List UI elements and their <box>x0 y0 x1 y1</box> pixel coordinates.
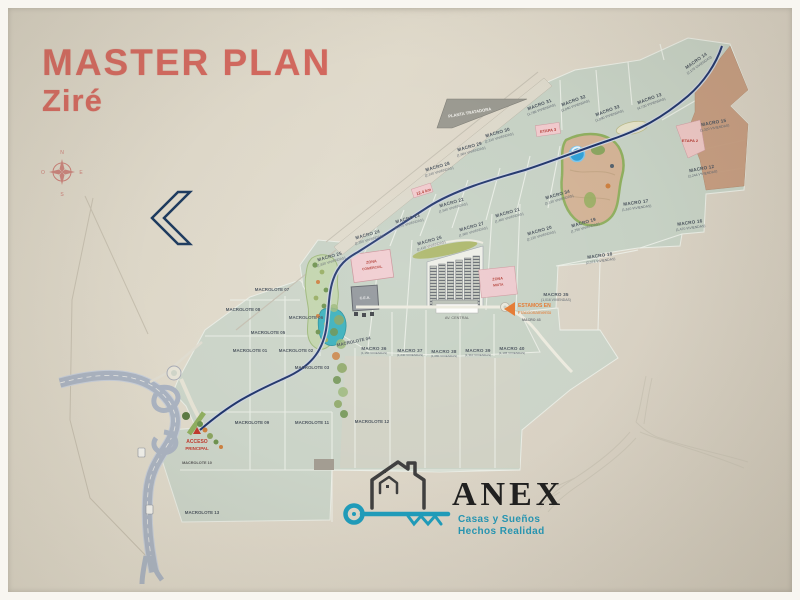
map-title-line1: MASTER PLAN <box>42 44 331 83</box>
photo-artifact <box>314 459 334 470</box>
compass-o: O <box>41 170 45 176</box>
compass-e: E <box>79 170 83 176</box>
macrolote-label: MACROLOTE 11 <box>295 420 330 425</box>
equipment-label: C.E.A. <box>360 296 371 301</box>
zona-mixta-parcel: ZONA MIXTA <box>479 266 518 298</box>
brand-tagline2: Hechos Realidad <box>458 526 545 537</box>
here-marker-sub: MACRO 43 <box>522 318 541 322</box>
compass-icon: N S E O <box>41 150 83 198</box>
macrolote-label: MACROLOTE 01 <box>233 348 268 353</box>
parcel-sub: (1,195 VIVIENDAS) <box>499 351 525 355</box>
parcel-label: MACRO 35 <box>543 292 569 297</box>
here-marker-line2: Fraccionamiento <box>518 310 552 315</box>
entrance-marker-line1: ACCESO <box>186 439 208 445</box>
highway <box>60 375 178 584</box>
here-marker-line1: ESTAMOS EN <box>518 303 551 309</box>
macrolote-label: MACROLOTE 09 <box>235 420 270 425</box>
brand-name: ANEX <box>452 476 564 513</box>
map-title: MASTER PLAN Ziré <box>42 44 331 117</box>
chevron-left-icon <box>152 192 190 244</box>
macrolote-label: MACROLOTE 03 <box>295 365 330 370</box>
avenue-label: AV. CENTRAL <box>445 316 469 320</box>
macrolote-label: MACROLOTE 05 <box>251 330 286 335</box>
etapa2-label: ETAPA 2 <box>682 138 699 143</box>
parcel-sub: (1,080 VIVIENDAS) <box>431 354 457 358</box>
future-roads-sketch <box>538 376 748 512</box>
macrolote-label: MACROLOTE 06 <box>289 315 324 320</box>
compass-n: N <box>60 150 64 156</box>
master-plan-photo: PLANTA TRATADORA <box>0 0 800 600</box>
map-title-line2: Ziré <box>42 85 331 118</box>
macrolote-label: MACROLOTE 12 <box>355 419 390 424</box>
parcel-sub: (1,240 VIVIENDAS) <box>397 353 423 357</box>
macrolote-label: MACROLOTE 08 <box>226 307 261 312</box>
entrance-marker-line2: PRINCIPAL <box>185 446 209 451</box>
macrolote-label: MACROLOTE 13 <box>185 510 220 515</box>
entrance-marker-sub: MACROLOTE 10 <box>182 461 212 465</box>
route-shield <box>146 505 153 514</box>
route-shield <box>138 448 145 457</box>
macrolote-label: MACROLOTE 02 <box>279 348 314 353</box>
compass-s: S <box>60 192 64 198</box>
parcel-sub: (1,150 VIVIENDAS) <box>361 351 387 355</box>
parcel-sub: (1,016 VIVIENDAS) <box>541 298 571 302</box>
brand-tagline1: Casas y Sueños <box>458 514 540 525</box>
key-icon <box>346 506 449 525</box>
macrolote-label: MACROLOTE 07 <box>255 287 290 292</box>
parcel-sub: (1,310 VIVIENDAS) <box>465 353 491 357</box>
